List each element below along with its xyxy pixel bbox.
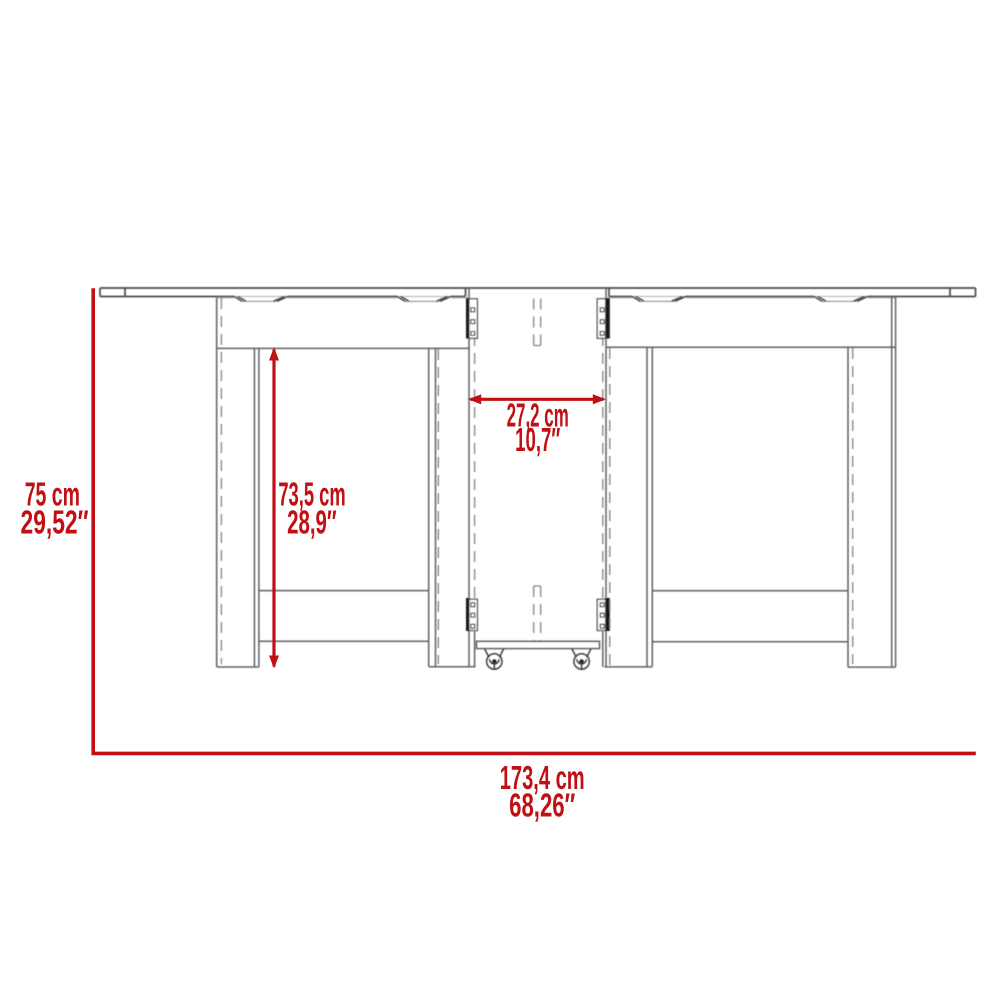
svg-text:29,52″: 29,52″: [21, 504, 89, 541]
svg-text:68,26″: 68,26″: [509, 787, 575, 823]
svg-text:28,9″: 28,9″: [287, 503, 337, 540]
svg-text:10,7″: 10,7″: [515, 421, 560, 458]
